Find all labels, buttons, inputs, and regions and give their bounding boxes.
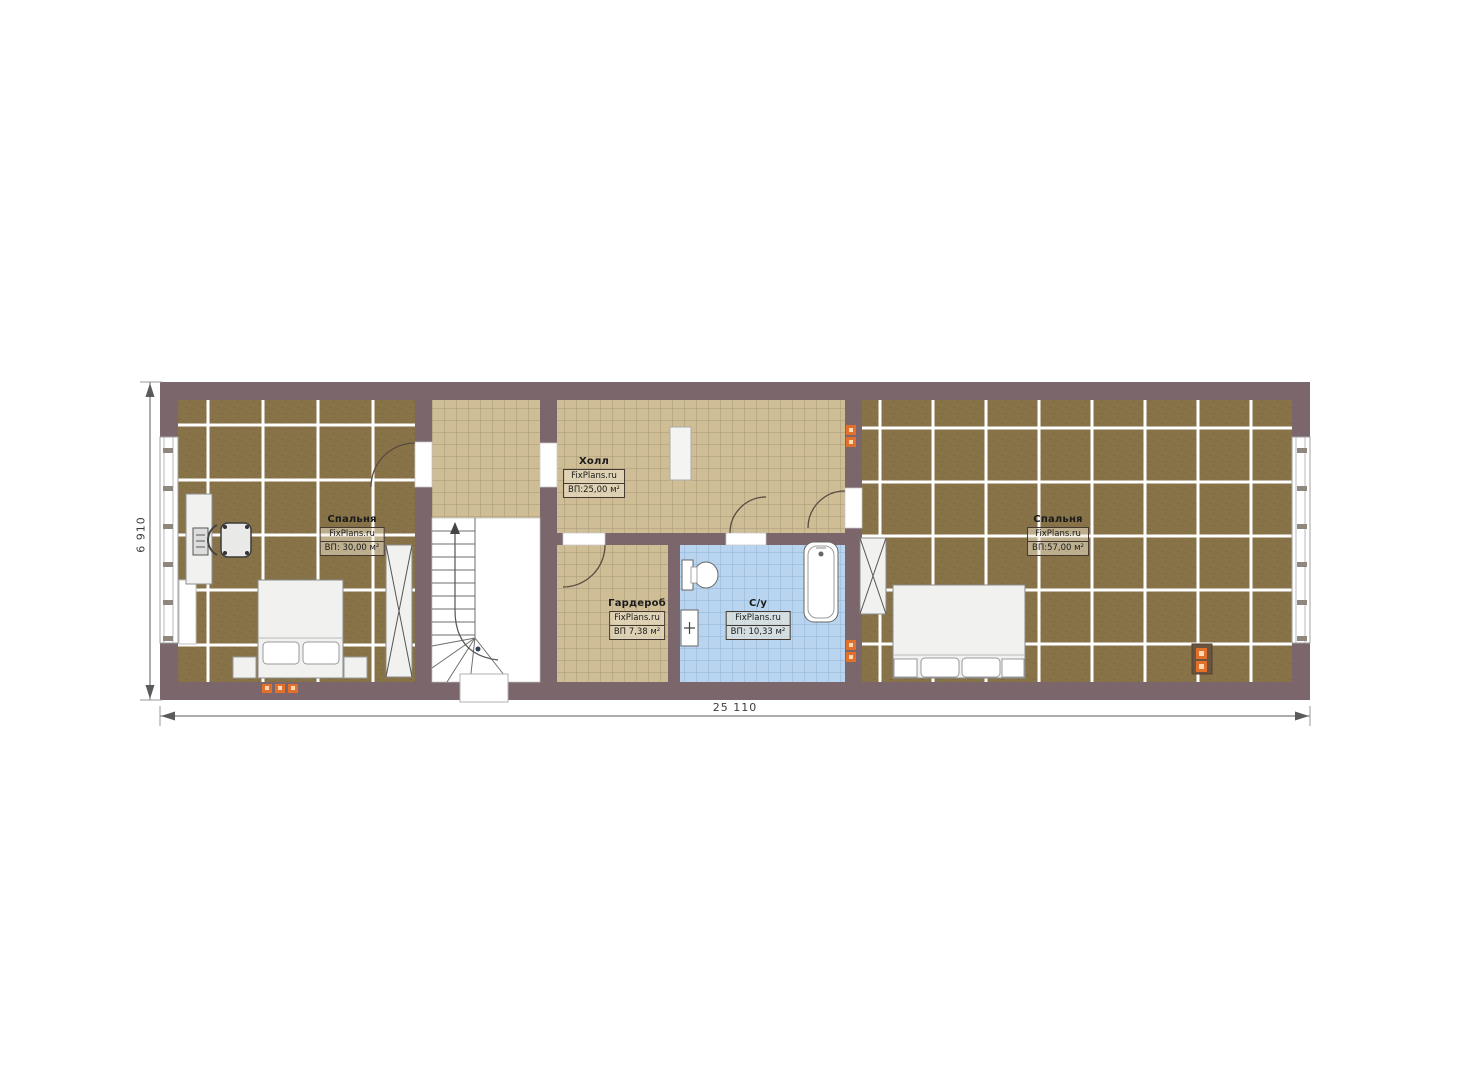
pillow	[303, 642, 339, 664]
nightstand	[894, 659, 917, 677]
window-sill-radiator	[179, 580, 196, 644]
dimension-height-label: 6 910	[135, 507, 148, 563]
stair-lower-flight-stub	[460, 674, 508, 702]
wall-hall-south-b	[605, 533, 726, 545]
wall-bottom	[160, 682, 1310, 700]
drain	[819, 552, 824, 557]
wall-top	[160, 382, 1310, 400]
wall-landing-hall-a	[540, 400, 557, 443]
monitor	[193, 528, 208, 555]
opening-landing-hall	[540, 443, 557, 487]
opening-bathroom	[726, 533, 766, 545]
brand-label: FixPlans.ru	[727, 612, 790, 626]
floor-socket-block	[1192, 644, 1212, 674]
room-info-box: FixPlans.ru ВП: 30,00 м²	[320, 527, 385, 556]
area-label: ВП: 30,00 м²	[321, 542, 384, 555]
dimension-width-label: 25 110	[713, 701, 758, 714]
brand-label: FixPlans.ru	[610, 612, 664, 626]
nightstand	[1002, 659, 1024, 677]
closet-x	[386, 545, 412, 677]
room-name: С/у	[726, 598, 791, 609]
floor-plan-canvas: Спальня FixPlans.ru ВП: 30,00 м² Холл Fi…	[0, 0, 1474, 1080]
wall-wardrobe-bathroom	[668, 545, 680, 682]
room-label-bedroom-right: Спальня FixPlans.ru ВП:57,00 м²	[1027, 514, 1089, 556]
room-name: Холл	[563, 456, 625, 467]
sink	[681, 610, 698, 646]
floor-plan-drawing	[0, 0, 1474, 1080]
nightstand	[344, 657, 367, 678]
room-label-bathroom: С/у FixPlans.ru ВП: 10,33 м²	[726, 598, 791, 640]
room-info-box: FixPlans.ru ВП 7,38 м²	[609, 611, 665, 640]
pillow	[921, 658, 959, 677]
window-left	[160, 437, 178, 643]
pillow	[962, 658, 1000, 677]
room-info-box: FixPlans.ru ВП: 10,33 м²	[726, 611, 791, 640]
room-info-box: FixPlans.ru ВП:25,00 м²	[563, 469, 625, 498]
floor-stair-landing	[432, 400, 540, 518]
stair-walk-dot	[476, 647, 481, 652]
toilet	[682, 560, 718, 590]
area-label: ВП: 10,33 м²	[727, 626, 790, 639]
room-name: Спальня	[320, 514, 385, 525]
brand-label: FixPlans.ru	[321, 528, 384, 542]
bed-double	[893, 585, 1025, 678]
socket-group-bedroom-left	[262, 684, 298, 693]
nightstand	[233, 657, 256, 678]
area-label: ВП:25,00 м²	[564, 484, 624, 497]
opening-bedroom-right	[845, 488, 862, 528]
room-label-hall: Холл FixPlans.ru ВП:25,00 м²	[563, 456, 625, 498]
brand-label: FixPlans.ru	[564, 470, 624, 484]
room-name: Гардероб	[608, 598, 666, 609]
wall-landing-hall-b	[540, 487, 557, 682]
wall-bedroom-left-a	[415, 400, 432, 442]
pillow	[263, 642, 299, 664]
wall-hall-south-a	[557, 533, 563, 545]
room-info-box: FixPlans.ru ВП:57,00 м²	[1027, 527, 1089, 556]
closet-x	[860, 538, 886, 614]
window-right	[1292, 437, 1310, 643]
brand-label: FixPlans.ru	[1028, 528, 1088, 542]
bathtub	[804, 542, 838, 622]
room-name: Спальня	[1027, 514, 1089, 525]
room-label-wardrobe: Гардероб FixPlans.ru ВП 7,38 м²	[608, 598, 666, 640]
wall-bedroom-left-b	[415, 487, 432, 682]
opening-bedroom-left	[415, 442, 432, 487]
staircase	[432, 518, 540, 702]
hall-cabinet	[670, 427, 691, 480]
opening-wardrobe	[563, 533, 605, 545]
area-label: ВП 7,38 м²	[610, 626, 664, 639]
area-label: ВП:57,00 м²	[1028, 542, 1088, 555]
room-label-bedroom-left: Спальня FixPlans.ru ВП: 30,00 м²	[320, 514, 385, 556]
